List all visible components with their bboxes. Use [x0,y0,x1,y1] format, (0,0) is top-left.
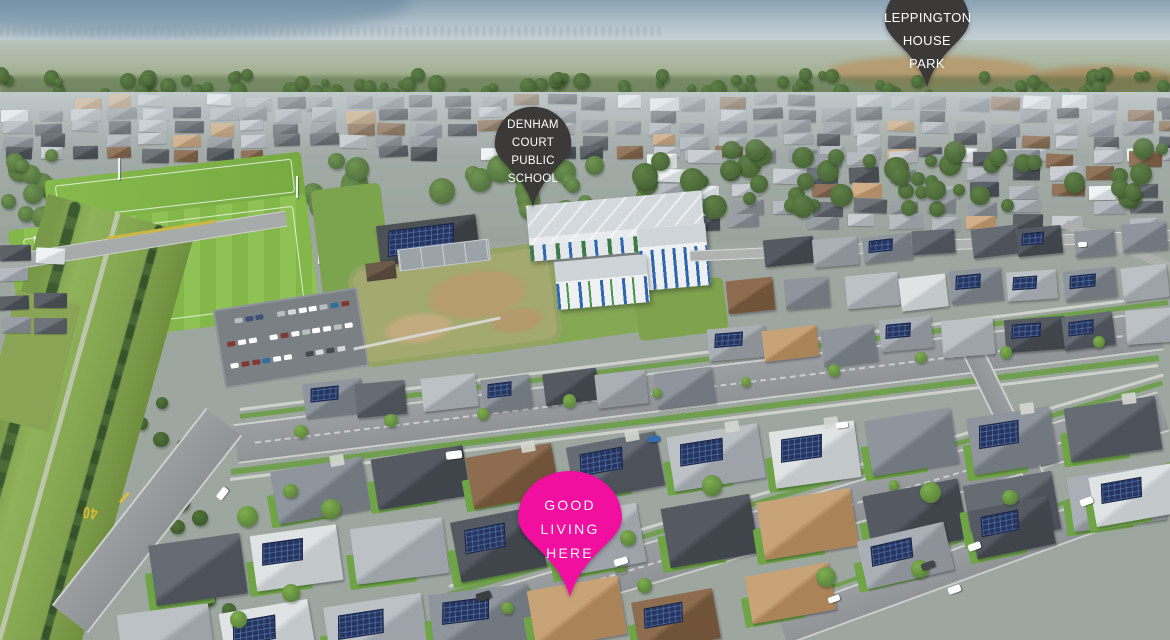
tree [680,168,706,194]
tree [282,584,301,603]
house-roof [728,213,759,227]
parked-car [334,324,343,330]
tree [142,74,154,86]
tree [702,475,723,496]
house-roof [346,96,372,108]
tree [929,201,945,217]
school-shed [365,260,397,282]
house-roof [149,532,249,605]
tree [722,141,741,160]
parked-car [277,311,286,317]
tree [828,364,841,377]
map-pin-denham-court-public-school: DENHAM COURT PUBLIC SCHOOL [494,106,572,208]
tree [534,78,548,92]
house-roof [580,97,604,111]
tree [563,394,577,408]
house-roof [72,120,98,132]
solar-panel-array [714,332,743,348]
parked-car [298,307,307,313]
parked-car [312,327,321,333]
parked-car [241,361,250,367]
house-roof [448,108,472,119]
house-roof [172,134,201,147]
solar-panel-array [311,385,340,402]
house-roof [1159,121,1170,131]
house-roof [755,93,778,104]
house-roof [769,420,862,488]
tree [656,69,670,83]
car [216,486,230,501]
house-roof [820,324,879,368]
tree [637,578,652,593]
house-roof [857,133,881,147]
house-roof [379,146,408,158]
house-roof [1011,200,1041,212]
house-roof [857,95,886,107]
tree [1064,172,1085,193]
tree [1133,138,1154,159]
solar-panel-array [488,382,512,399]
parked-car [284,354,293,360]
tree [1134,72,1144,82]
house-roof [853,198,887,213]
house-roof [582,119,608,131]
solar-panel-array [980,509,1019,537]
house-roof [991,123,1021,137]
tree [911,172,925,186]
tree [1002,490,1018,506]
tree [328,153,345,170]
tree [1156,143,1168,155]
tree [1000,346,1013,359]
house-roof [940,317,995,358]
house-roof [312,107,336,121]
tree [294,425,308,439]
tree [979,71,991,83]
solar-panel-array [782,434,822,462]
house-roof [350,518,449,586]
tree [295,76,308,89]
house-roof [1021,109,1047,121]
tree [746,75,755,84]
house-roof [912,228,957,254]
tree [54,78,63,87]
house-roof [1022,135,1050,148]
tree [153,432,169,448]
house-roof [1022,96,1051,110]
house-roof [139,120,168,132]
house-roof [845,272,901,310]
solar-panel-array [644,602,683,629]
house-roof [548,93,578,104]
tree [501,602,513,614]
house-roof [594,369,648,408]
house-roof [174,121,203,133]
parked-car [309,306,318,312]
house-roof [410,147,436,161]
distant-city-skyline [0,27,660,36]
house-roof [408,95,431,107]
house-roof [138,133,166,144]
tree [428,75,446,93]
driveway [520,439,536,452]
pin-label: GOOD LIVING HERE [517,470,623,565]
house-roof [310,132,340,145]
house-roof [631,588,721,640]
house-roof [1093,149,1123,164]
pin-label: LEPPINGTON HOUSE PARK [884,0,970,75]
house-roof [3,120,33,132]
house-roof [410,108,437,120]
house-roof [448,124,477,136]
tree [192,510,208,526]
driveway [1020,402,1036,415]
tree [237,506,258,527]
solar-panel-array [1012,323,1042,339]
house-roof [514,93,539,104]
house-roof [0,245,31,262]
house-roof [174,149,198,162]
house-roof [754,124,777,136]
house-roof [970,224,1021,258]
house-roof [241,134,266,148]
house-roof [275,108,302,122]
house-roof [1,110,28,122]
parked-car [305,351,314,357]
tree [915,352,926,363]
house-roof [1124,307,1170,345]
house-roof [117,603,216,640]
house-roof [40,111,63,122]
house-roof [891,96,915,110]
house-roof [323,593,430,640]
solar-panel-array [1022,231,1045,245]
solar-panel-array [1101,477,1142,505]
house-roof [1088,124,1114,137]
parked-car [270,334,279,340]
house-roof [680,136,710,150]
parked-car [302,329,311,335]
tree [1,194,16,209]
map-pin-good-living-here: GOOD LIVING HERE [517,470,623,598]
tree [429,178,455,204]
tree [321,499,341,519]
tree [745,139,766,160]
house-roof [1061,311,1116,352]
parked-car [287,309,296,315]
house-roof [0,295,29,311]
house-roof [822,108,851,122]
solar-panel-array [868,238,892,252]
house-roof [823,121,850,134]
car [1078,242,1087,247]
driveway [724,420,740,433]
house-roof [948,266,1002,304]
house-roof [1094,95,1118,110]
house-roof [41,133,65,147]
tree [321,79,329,87]
house-roof [1054,124,1078,135]
tree [925,180,946,201]
solar-panel-array [262,538,303,566]
house-roof [107,134,130,147]
tree [573,73,590,90]
house-roof [142,109,168,121]
house-roof [109,94,132,108]
solar-panel-array [979,420,1019,449]
tree [944,141,966,163]
pin-label: DENHAM COURT PUBLIC SCHOOL [494,106,572,188]
parked-car [280,332,289,338]
parked-car [262,357,271,363]
driveway [1121,392,1136,405]
tree [384,414,398,428]
house-roof [278,96,307,109]
house-roof [706,325,767,362]
house-roof [379,108,408,120]
solar-panel-array [1013,275,1038,289]
house-roof [421,373,479,412]
house-roof [106,147,131,159]
house-roof [36,248,66,265]
house-roof [653,366,715,409]
parked-car [227,341,236,347]
house-roof [375,97,404,109]
house-roof [888,135,917,149]
driveway [624,428,640,441]
parked-car [326,347,335,353]
house-roof [812,236,859,268]
house-roof [688,149,722,162]
flood-light-pole [296,176,298,198]
house-roof [718,121,747,134]
house-roof [1004,316,1067,353]
house-roof [415,123,441,136]
house-roof [1016,225,1063,257]
house-roof [920,95,946,109]
house-roof [211,123,234,137]
driveway [329,453,345,466]
house-roof [1123,120,1153,135]
house-roof [340,134,367,148]
house-roof [720,96,746,109]
house-roof [1006,269,1057,302]
tree [1125,183,1141,199]
tree [411,68,425,82]
house-roof [861,232,912,264]
house-roof [855,107,882,121]
house-roof [784,276,831,309]
tree [345,157,369,181]
house-roof [763,236,815,268]
house-roof [274,134,300,147]
parked-car [273,356,282,362]
house-roof [249,525,343,592]
tree [477,408,489,420]
house-roof [887,120,914,131]
parked-car [316,349,325,355]
tree [1130,163,1152,185]
tree [777,76,789,88]
house-roof [848,214,875,226]
car [648,435,661,442]
house-roof [1121,221,1168,252]
house-roof [34,318,67,334]
house-roof [653,134,676,146]
house-roof [354,379,407,418]
parked-car [344,322,353,328]
house-roof [377,122,406,135]
house-roof [992,136,1016,148]
tree [156,397,168,409]
solar-panel-array [886,323,912,339]
house-roof [807,217,839,229]
house-roof [107,107,137,120]
tree [283,484,297,498]
house-roof [33,293,67,309]
house-roof [960,97,990,111]
solar-panel-array [870,537,913,566]
parked-car [330,302,339,308]
house-roof [681,97,705,111]
house-roof [1062,266,1117,301]
house-roof [725,277,775,314]
parked-car [319,304,328,310]
house-roof [1120,263,1170,301]
house-roof [209,108,239,121]
tree [1095,71,1103,79]
aerial-photo: 40 LEPPINGTON HOUSE PARK DENHAM COURT PU… [0,0,1170,640]
house-roof [71,108,101,120]
house-roof [345,111,375,124]
house-roof [784,134,814,145]
parked-car [248,337,257,343]
solar-panel-array [955,273,981,289]
tree [925,155,937,167]
parked-car [234,317,243,323]
house-roof [848,167,879,184]
house-roof [108,120,131,133]
school-building [554,254,650,310]
house-roof [761,324,819,361]
tree [721,161,739,179]
tree [702,195,727,220]
house-roof [782,119,812,132]
house-roof [990,96,1019,110]
house-roof [173,107,201,118]
solar-panel-array [338,608,384,639]
house-roof [207,147,234,160]
house-roof [922,121,949,133]
parked-car [323,326,332,332]
parked-car [245,316,254,322]
house-roof [0,267,29,281]
house-roof [1009,186,1038,200]
house-roof [142,149,169,163]
house-roof [1055,136,1078,150]
house-roof [879,316,933,353]
parked-car [255,314,264,320]
house-roof [207,93,231,105]
house-roof [2,317,30,333]
tree [1093,336,1105,348]
house-roof [138,95,164,107]
tree [792,195,815,218]
house-roof [752,107,782,120]
solar-panel-array [1069,319,1094,337]
house-roof [852,183,882,199]
solar-panel-array [1069,273,1095,289]
house-roof [680,123,704,134]
house-roof [615,121,640,135]
tree [792,147,813,168]
house-roof [617,146,643,160]
house-roof [73,146,98,160]
house-roof [898,274,949,313]
house-roof [816,134,839,147]
road-speed-marking: 40 [81,503,99,524]
parked-car [341,301,350,307]
tree [799,68,812,81]
parked-car [291,331,300,337]
house-roof [240,119,263,130]
tree [863,154,876,167]
parked-car [252,359,261,365]
house-roof [1057,107,1080,118]
house-roof [617,94,641,108]
house-roof [445,96,471,108]
house-roof [239,107,267,120]
map-pin-leppington-house-park: LEPPINGTON HOUSE PARK [884,0,970,88]
tree [989,148,1007,166]
house-roof [788,94,815,106]
tree [230,611,247,628]
house-roof [649,98,678,112]
solar-panel-array [464,522,506,554]
parked-car [230,363,239,369]
parked-car [337,346,346,352]
parked-car [238,339,247,345]
solar-panel-array [680,437,723,466]
house-roof [480,374,533,413]
house-roof [1161,109,1170,120]
flood-light-pole [118,158,120,180]
